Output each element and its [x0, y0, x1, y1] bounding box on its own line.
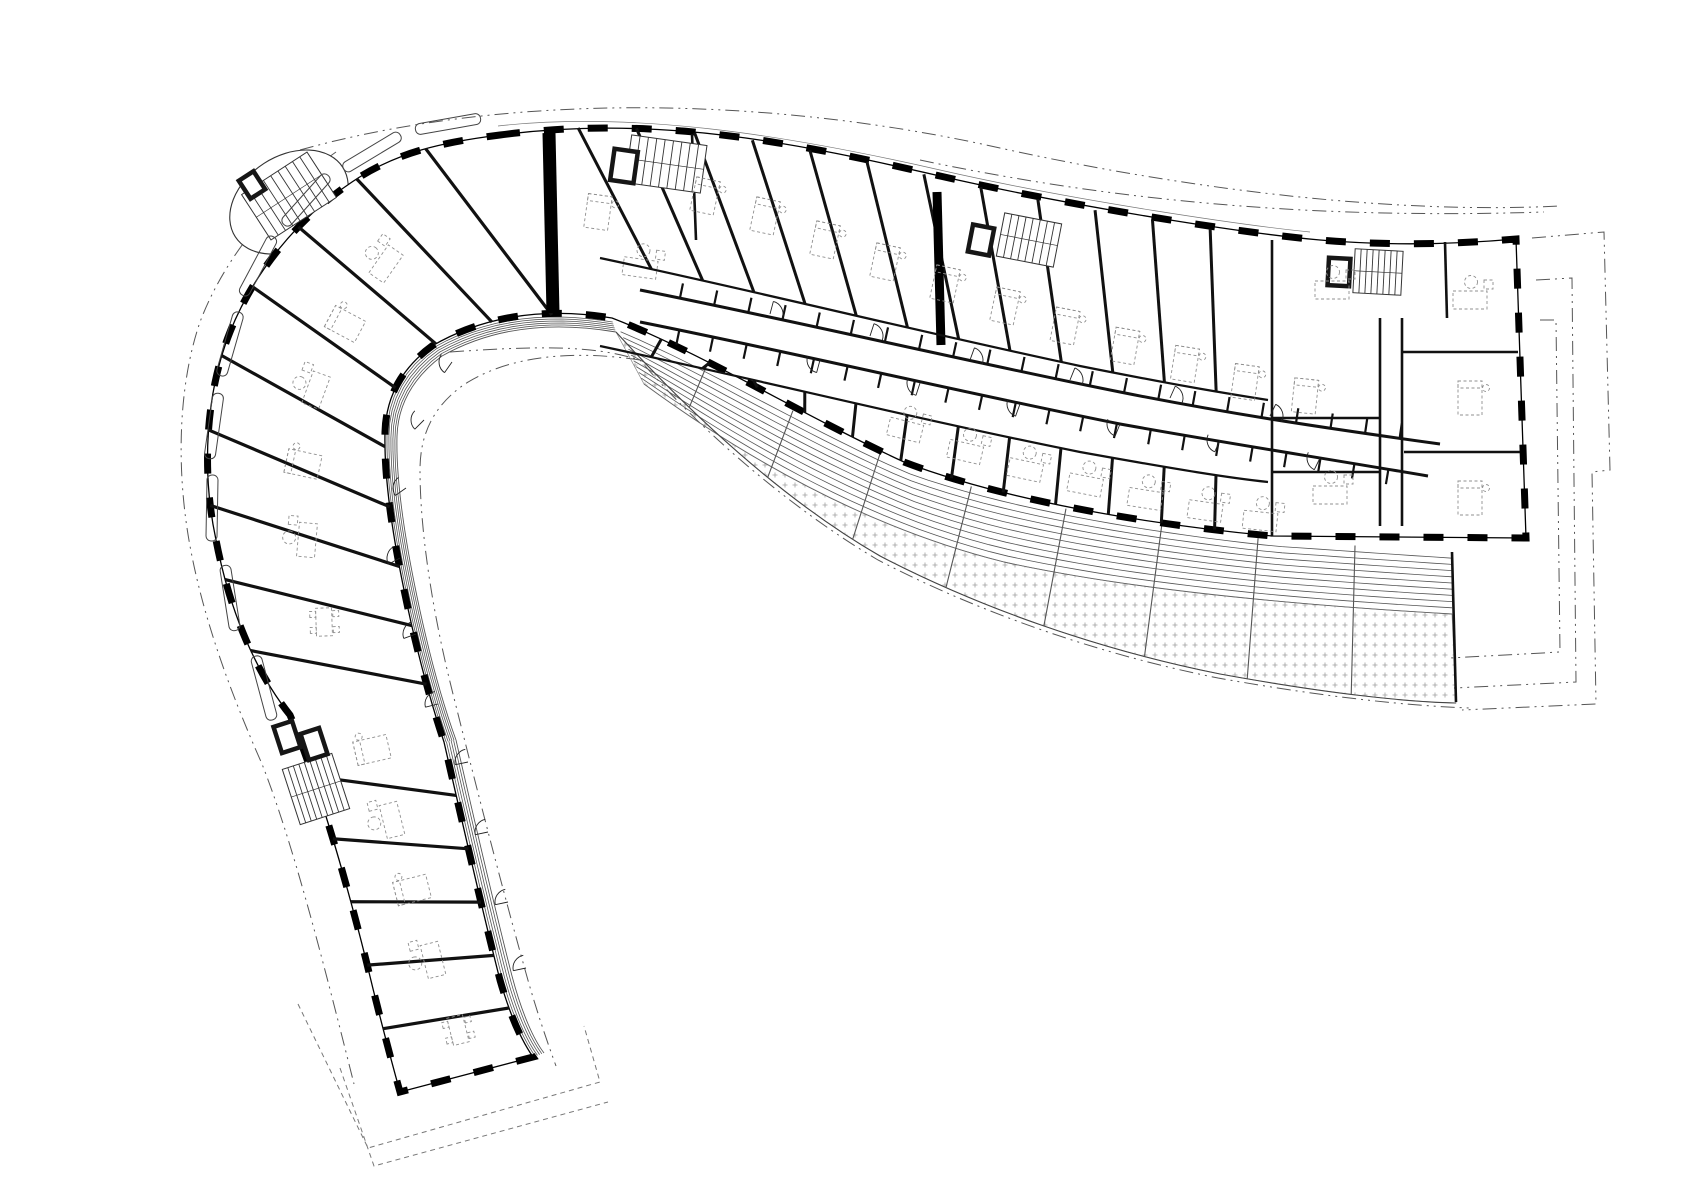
floor-plan-page	[0, 0, 1697, 1200]
floor-plan-canvas	[0, 0, 1697, 1200]
